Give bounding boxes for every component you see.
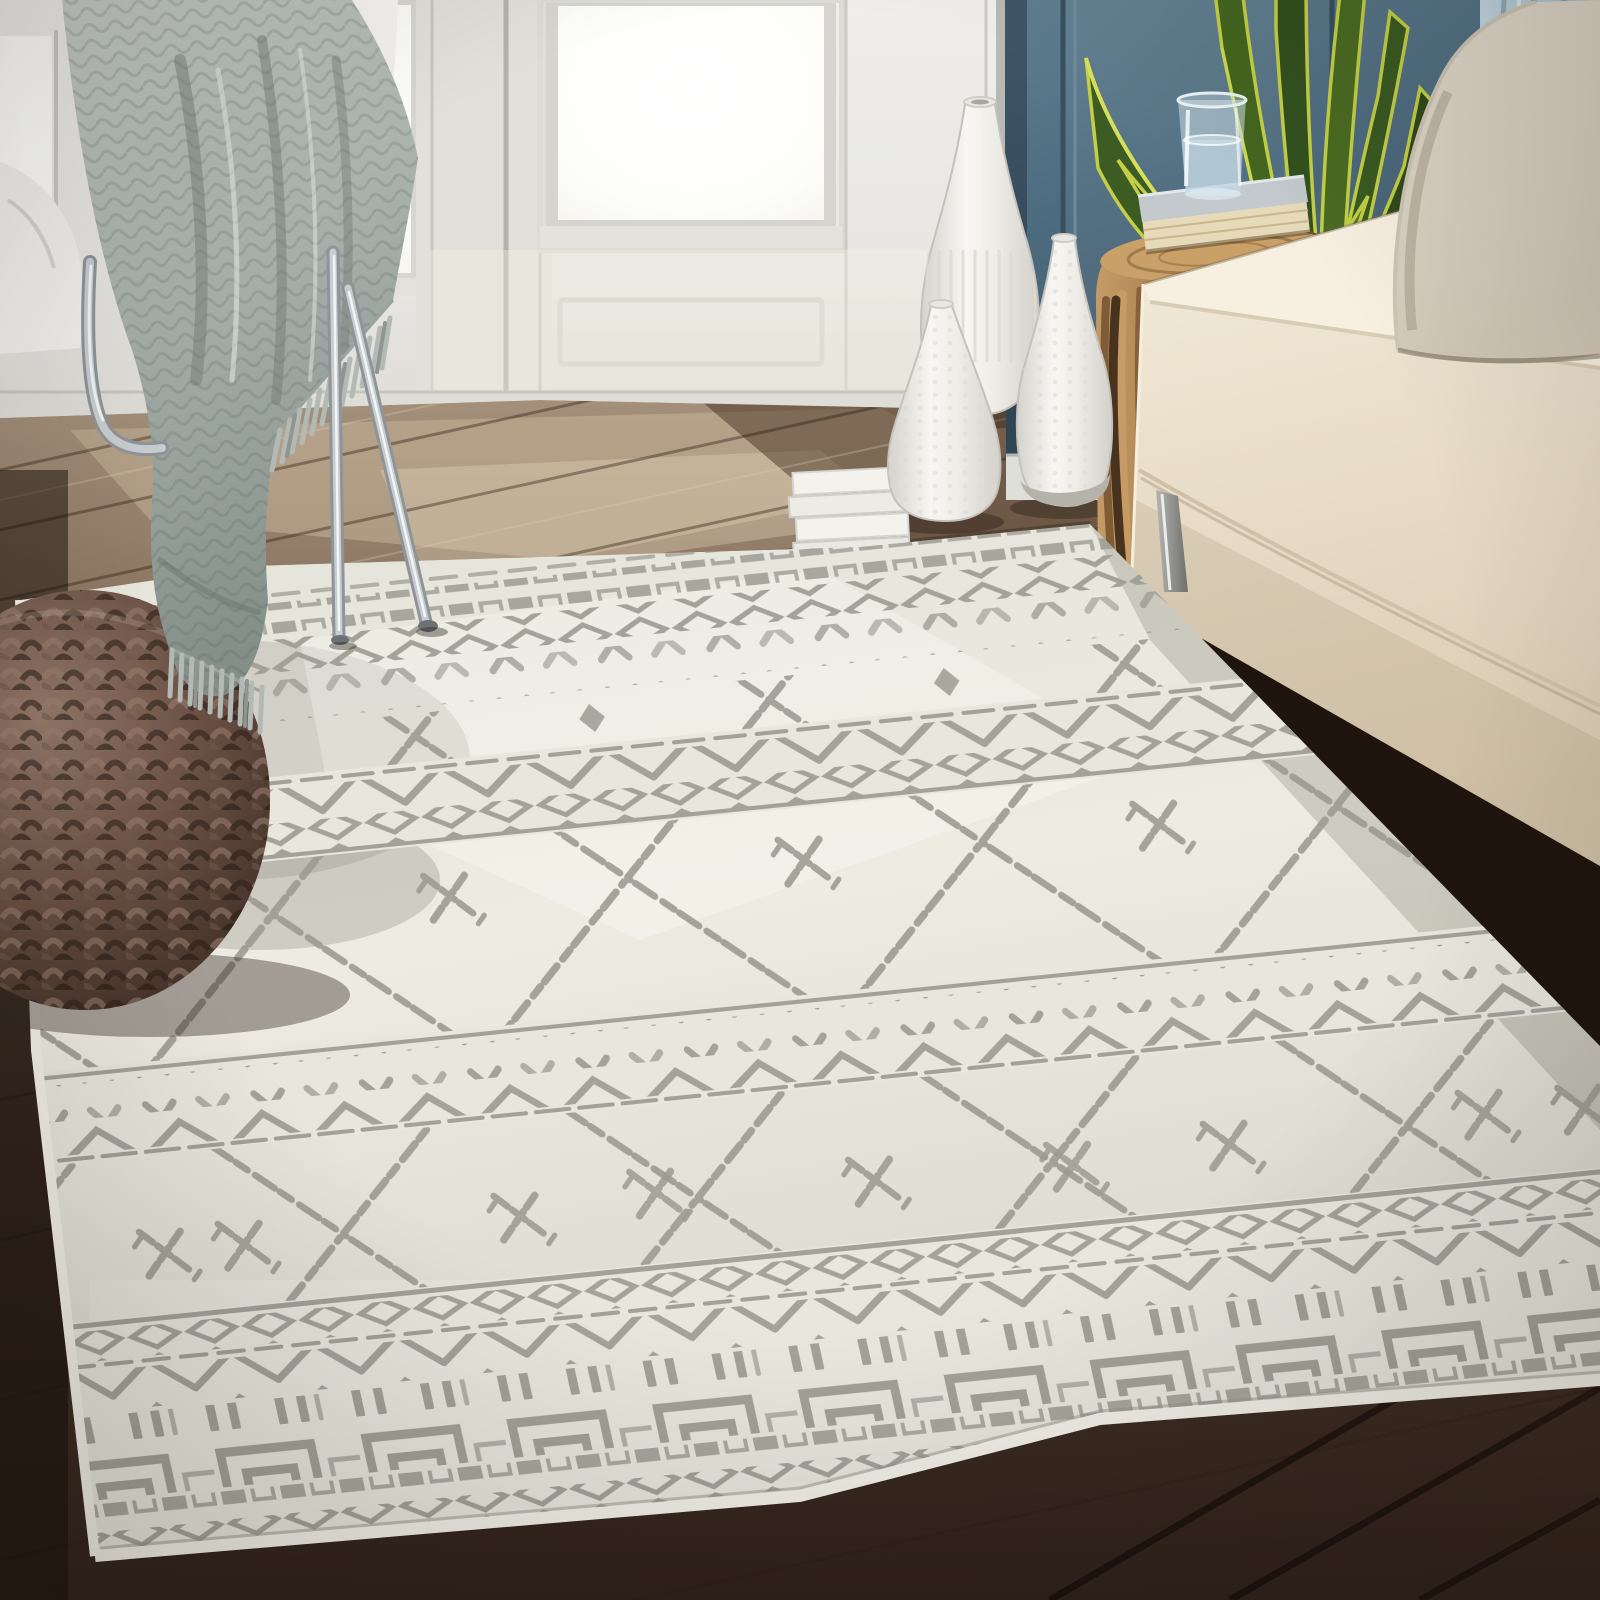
scene-canvas — [0, 0, 1600, 1600]
vignette — [0, 0, 1600, 1600]
living-room-photo: Bright living room with cream Moroccan t… — [0, 0, 1600, 1600]
